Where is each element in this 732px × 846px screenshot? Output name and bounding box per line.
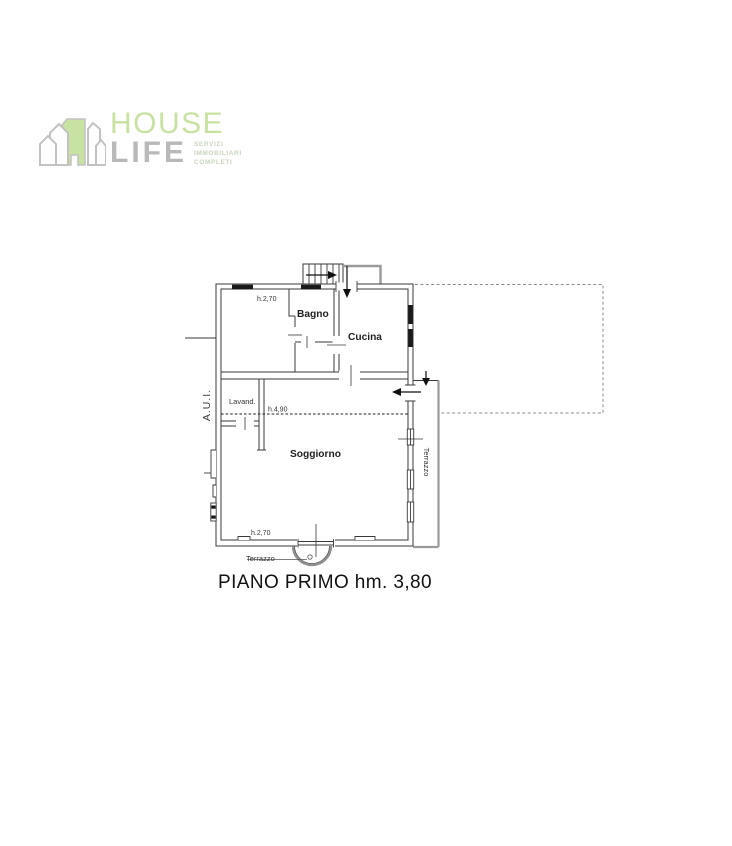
- room-label-cucina: Cucina: [348, 332, 382, 343]
- terrazzo-side-label: Terrazzo: [422, 448, 431, 477]
- room-label-bagno: Bagno: [297, 309, 329, 320]
- annex-dashed-outline: [415, 285, 603, 414]
- logo-tagline-line: IMMOBILIARI: [194, 149, 242, 158]
- terrace-arrow: [422, 378, 430, 386]
- stair-landing-gray-outline: [343, 266, 381, 285]
- logo-title-house: HOUSE: [110, 110, 242, 138]
- height-label-top: h.2,70: [257, 296, 277, 303]
- outer-walls: [216, 284, 413, 546]
- logo-tagline: SERVIZI IMMOBILIARI COMPLETI: [194, 140, 242, 167]
- logo-text: HOUSE LIFE SERVIZI IMMOBILIARI COMPLETI: [110, 110, 242, 168]
- floor-plan-drawing: Bagno Cucina Lavand. Soggiorno h.2,70 h.…: [180, 245, 620, 605]
- logo-buildings-icon: [38, 113, 106, 169]
- logo-title-life: LIFE: [110, 138, 187, 168]
- logo-tagline-line: COMPLETI: [194, 158, 242, 167]
- room-label-soggiorno: Soggiorno: [290, 449, 341, 460]
- terrazzo-front-label: Terrazzo: [246, 554, 275, 563]
- stairs: [303, 264, 381, 285]
- height-label-bottom: h.2,70: [251, 530, 271, 537]
- house-life-logo: HOUSE LIFE SERVIZI IMMOBILIARI COMPLETI: [38, 110, 242, 169]
- logo-tagline-line: SERVIZI: [194, 140, 242, 149]
- plan-caption: PIANO PRIMO hm. 3,80: [180, 572, 470, 594]
- page: HOUSE LIFE SERVIZI IMMOBILIARI COMPLETI: [0, 0, 732, 846]
- building-shape: [96, 140, 106, 165]
- building-shape: [40, 136, 56, 165]
- room-label-lavanderia: Lavand.: [229, 397, 256, 406]
- aui-label: A.U.I.: [201, 389, 213, 421]
- height-label-mid: h.4,90: [268, 407, 288, 414]
